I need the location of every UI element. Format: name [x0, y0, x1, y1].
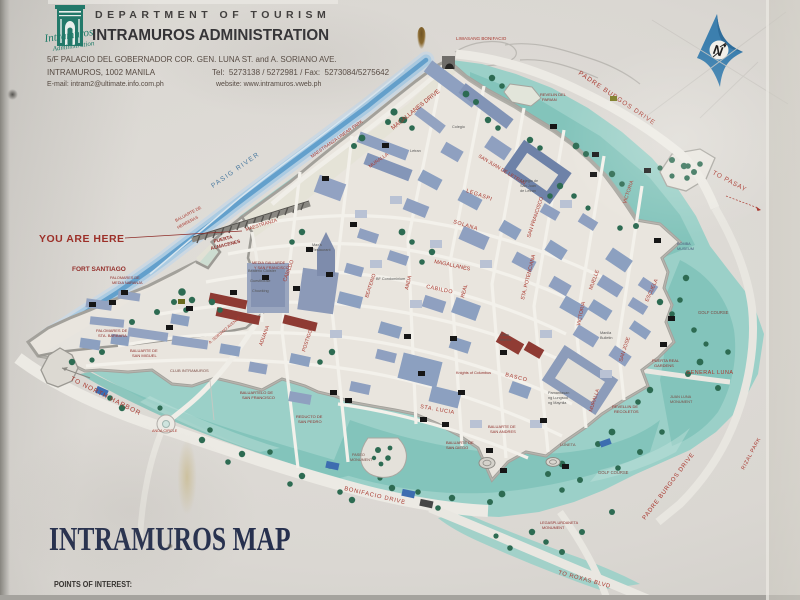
svg-text:GARDENS: GARDENS — [654, 363, 674, 368]
svg-text:MURALLA: MURALLA — [368, 151, 391, 169]
svg-text:SOLANA: SOLANA — [452, 219, 478, 232]
svg-text:MEDIA GALLARDE: MEDIA GALLARDE — [252, 261, 286, 265]
svg-text:POSTIGO: POSTIGO — [301, 329, 314, 353]
svg-text:Pamantasan: Pamantasan — [548, 391, 569, 395]
svg-text:RIZAL PARK: RIZAL PARK — [740, 437, 762, 471]
svg-text:A. SORIANO AVENUE: A. SORIANO AVENUE — [207, 315, 241, 345]
svg-text:GOLF COURSE: GOLF COURSE — [598, 470, 629, 475]
svg-text:ANDA: ANDA — [404, 275, 413, 291]
svg-text:SAN FRANCISCO: SAN FRANCISCO — [242, 395, 275, 400]
svg-text:BONIFACIO DRIVE: BONIFACIO DRIVE — [344, 486, 407, 506]
svg-text:VICTORIA: VICTORIA — [576, 301, 587, 327]
svg-text:Bulletin: Bulletin — [600, 336, 612, 340]
svg-text:REAL: REAL — [460, 284, 469, 299]
svg-text:ESCUELA: ESCUELA — [644, 278, 660, 303]
svg-text:Casa: Casa — [500, 333, 510, 337]
svg-text:GENERAL LUNA: GENERAL LUNA — [686, 370, 733, 376]
svg-text:GOLF COURSE: GOLF COURSE — [698, 310, 729, 315]
svg-text:ng Lungsod: ng Lungsod — [548, 396, 568, 400]
svg-text:JUAN LUNA: JUAN LUNA — [670, 395, 692, 399]
svg-text:Colegio de: Colegio de — [520, 179, 538, 183]
svg-text:BOMBA: BOMBA — [677, 242, 691, 246]
svg-text:MAGALLANES: MAGALLANES — [434, 259, 471, 273]
svg-text:TO NORTH HARBOR: TO NORTH HARBOR — [69, 376, 142, 418]
svg-text:PASIG RIVER: PASIG RIVER — [210, 151, 261, 190]
svg-text:MONUMENT: MONUMENT — [542, 526, 565, 530]
svg-text:San Juan: San Juan — [520, 184, 536, 188]
svg-text:MURALLA: MURALLA — [588, 388, 601, 413]
svg-text:ADUANA: ADUANA — [258, 324, 271, 346]
svg-text:SAN JOSE: SAN JOSE — [618, 336, 632, 363]
svg-text:Knights of Columbus: Knights of Columbus — [456, 371, 491, 375]
svg-text:STA. POTENCIANA: STA. POTENCIANA — [520, 254, 537, 301]
svg-text:LUNETA: LUNETA — [560, 442, 576, 447]
svg-text:TO ROXAS BLVD: TO ROXAS BLVD — [557, 570, 611, 590]
svg-text:RECOLETOS: RECOLETOS — [614, 409, 639, 414]
svg-text:MONUMENT: MONUMENT — [350, 458, 373, 462]
svg-text:YOU ARE HERE: YOU ARE HERE — [39, 233, 125, 245]
svg-text:de Letran: de Letran — [520, 189, 536, 193]
svg-text:Y SAN FRANCISCO: Y SAN FRANCISCO — [254, 266, 289, 270]
svg-text:LEGASPI: LEGASPI — [465, 188, 493, 203]
svg-text:Colegio: Colegio — [452, 125, 465, 129]
svg-text:Letran: Letran — [410, 149, 421, 153]
svg-text:MAESTRANZA LINEAR PARK: MAESTRANZA LINEAR PARK — [310, 118, 365, 158]
svg-text:MAESTRANZA: MAESTRANZA — [245, 217, 279, 233]
svg-text:PARIAN: PARIAN — [542, 97, 557, 102]
svg-text:SAN FRANCISCO: SAN FRANCISCO — [526, 196, 545, 238]
svg-text:BF Condominium: BF Condominium — [376, 277, 405, 281]
svg-text:Max's: Max's — [312, 243, 322, 247]
svg-text:Restaurant: Restaurant — [312, 248, 332, 252]
svg-text:STA. LUCIA: STA. LUCIA — [420, 404, 455, 416]
svg-text:CLUB INTRAMUROS: CLUB INTRAMUROS — [170, 368, 209, 373]
svg-text:LEGASPI-URDANETA: LEGASPI-URDANETA — [540, 521, 579, 525]
svg-text:SAN PEDRO: SAN PEDRO — [298, 419, 322, 424]
svg-text:PADRE BURGOS DRIVE: PADRE BURGOS DRIVE — [642, 452, 696, 521]
svg-text:CABILDO: CABILDO — [426, 284, 454, 296]
svg-text:FORT SANTIAGO: FORT SANTIAGO — [72, 266, 126, 273]
svg-text:MUSEUM: MUSEUM — [677, 247, 694, 251]
svg-text:SAN DIEGO: SAN DIEGO — [446, 445, 468, 450]
svg-text:Chowking: Chowking — [252, 289, 269, 293]
svg-text:SAN ANDRES: SAN ANDRES — [490, 429, 516, 434]
svg-text:MUELLE: MUELLE — [588, 269, 601, 291]
svg-text:SAN MIGUEL: SAN MIGUEL — [132, 353, 157, 358]
svg-text:PALOMARES DE: PALOMARES DE — [110, 276, 140, 280]
svg-text:BASCO: BASCO — [505, 372, 529, 383]
svg-text:LIWASANG BONIFACIO: LIWASANG BONIFACIO — [456, 36, 507, 41]
svg-text:MONUMENT: MONUMENT — [670, 400, 693, 404]
svg-text:PASEO: PASEO — [352, 453, 365, 457]
svg-text:ng Maynila: ng Maynila — [548, 401, 567, 405]
svg-text:Manila: Manila — [600, 331, 612, 335]
svg-text:Manila: Manila — [500, 338, 512, 342]
svg-text:STA. BARBARA: STA. BARBARA — [98, 333, 127, 338]
svg-text:MEDIA NARANJA: MEDIA NARANJA — [112, 281, 143, 285]
